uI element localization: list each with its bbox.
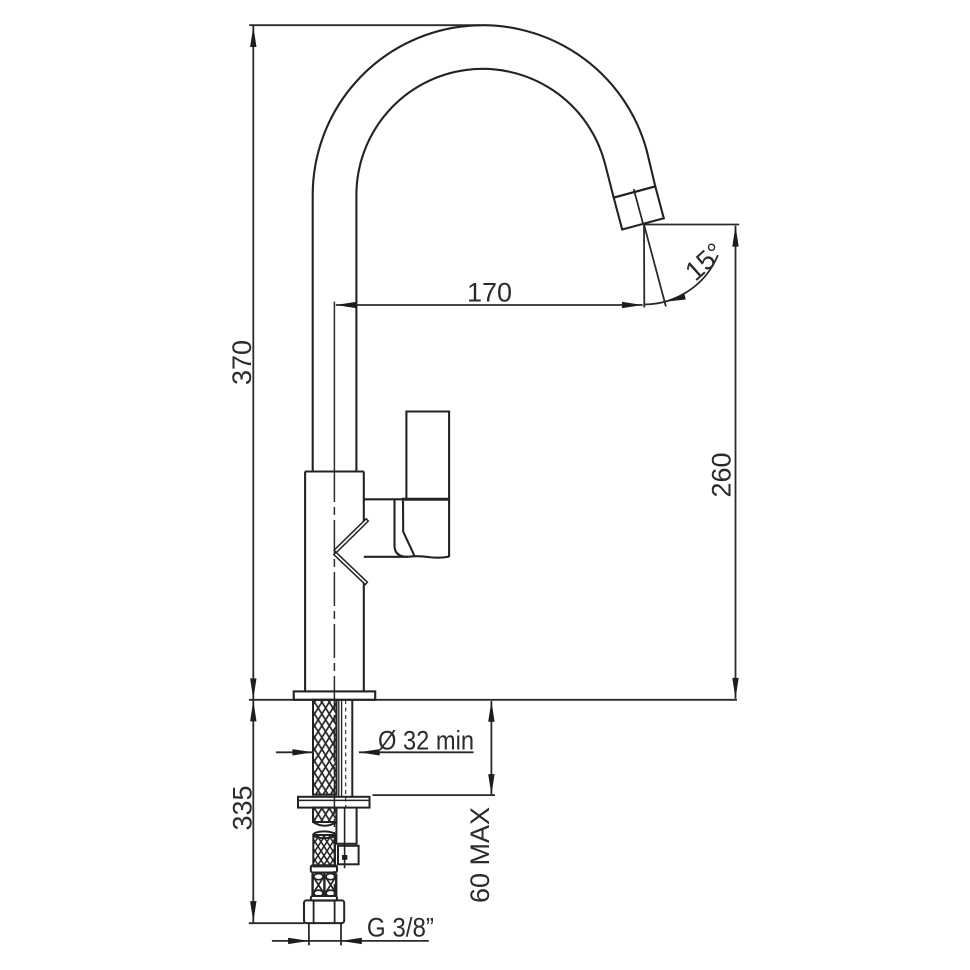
svg-text:260: 260 [707,452,737,497]
svg-text:370: 370 [227,340,257,385]
svg-text:170: 170 [467,278,512,308]
svg-text:Ø 32 min: Ø 32 min [378,726,474,756]
svg-text:335: 335 [228,785,258,830]
svg-text:60 MAX: 60 MAX [465,807,495,903]
svg-text:G 3/8”: G 3/8” [367,913,434,943]
